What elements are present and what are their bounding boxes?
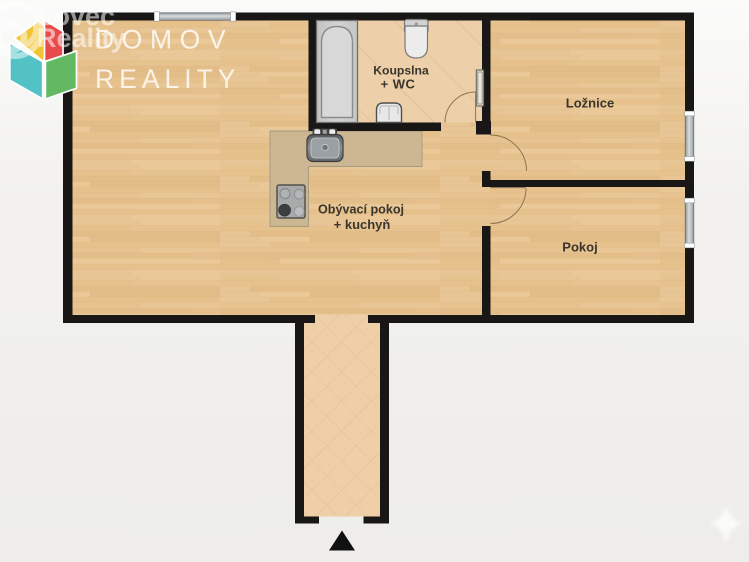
svg-text:Koupslna: Koupslna (373, 64, 429, 78)
svg-text:Reality: Reality (37, 23, 126, 53)
svg-text:Obývací pokoj: Obývací pokoj (318, 203, 404, 217)
svg-text:Ložnice: Ložnice (566, 96, 614, 111)
svg-text:Pokoj: Pokoj (562, 240, 597, 255)
svg-text:+ kuchyň: + kuchyň (334, 217, 391, 232)
svg-text:+ WC: + WC (381, 77, 416, 92)
svg-text:REALITY: REALITY (95, 64, 240, 94)
